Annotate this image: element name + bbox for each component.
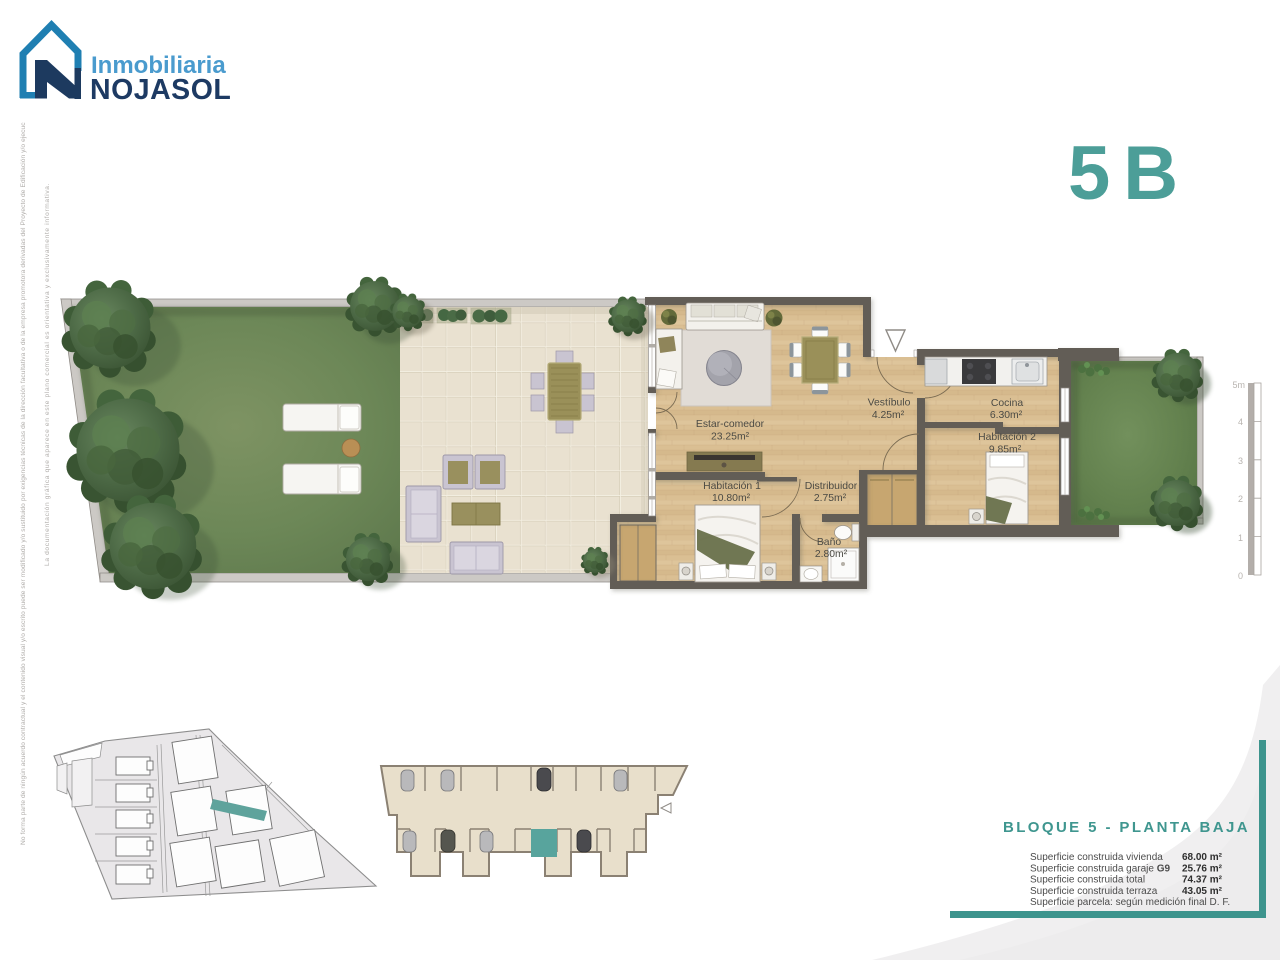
svg-text:NOJASOL: NOJASOL (90, 74, 231, 106)
svg-text:Superficie construida terraza: Superficie construida terraza (1030, 886, 1158, 897)
svg-text:Estar-comedor: Estar-comedor (696, 419, 765, 430)
svg-text:Baño: Baño (817, 537, 841, 548)
svg-text:No forma parte de ningún acuer: No forma parte de ningún acuerdo contrac… (20, 122, 27, 845)
svg-text:Habitación 2: Habitación 2 (978, 432, 1036, 443)
svg-text:Superficie construida total: Superficie construida total (1030, 875, 1145, 886)
svg-text:74.37 m²: 74.37 m² (1182, 875, 1223, 886)
svg-text:4.25m²: 4.25m² (872, 410, 905, 421)
svg-text:1: 1 (1238, 533, 1243, 543)
svg-text:Superficie parcela: según medi: Superficie parcela: según medición final… (1030, 897, 1230, 908)
svg-text:25.76 m²: 25.76 m² (1182, 863, 1223, 874)
svg-text:2.80m²: 2.80m² (815, 549, 848, 560)
svg-text:Superficie construida vivienda: Superficie construida vivienda (1030, 852, 1163, 863)
svg-text:10.80m²: 10.80m² (712, 493, 751, 504)
svg-text:9.85m²: 9.85m² (989, 445, 1022, 456)
svg-text:5m: 5m (1232, 380, 1245, 390)
svg-text:3: 3 (1238, 456, 1243, 466)
svg-text:5B: 5B (1068, 131, 1191, 216)
svg-text:43.05 m²: 43.05 m² (1182, 886, 1223, 897)
svg-text:La documentación gráfica que a: La documentación gráfica que aparece en … (44, 183, 51, 566)
svg-text:Cocina: Cocina (991, 398, 1024, 409)
svg-text:Vestíbulo: Vestíbulo (868, 398, 911, 409)
svg-text:68.00 m²: 68.00 m² (1182, 852, 1223, 863)
svg-text:Distribuidor: Distribuidor (805, 481, 858, 492)
svg-text:23.25m²: 23.25m² (711, 432, 750, 443)
svg-text:BLOQUE 5 - PLANTA BAJA: BLOQUE 5 - PLANTA BAJA (1003, 819, 1250, 836)
svg-text:2: 2 (1238, 494, 1243, 504)
svg-text:4: 4 (1238, 417, 1243, 427)
svg-text:Habitación 1: Habitación 1 (703, 481, 761, 492)
svg-text:6.30m²: 6.30m² (990, 410, 1023, 421)
svg-text:Superficie construida garaje G: Superficie construida garaje G9 (1030, 863, 1171, 874)
svg-text:0: 0 (1238, 571, 1243, 581)
svg-text:2.75m²: 2.75m² (814, 493, 847, 504)
